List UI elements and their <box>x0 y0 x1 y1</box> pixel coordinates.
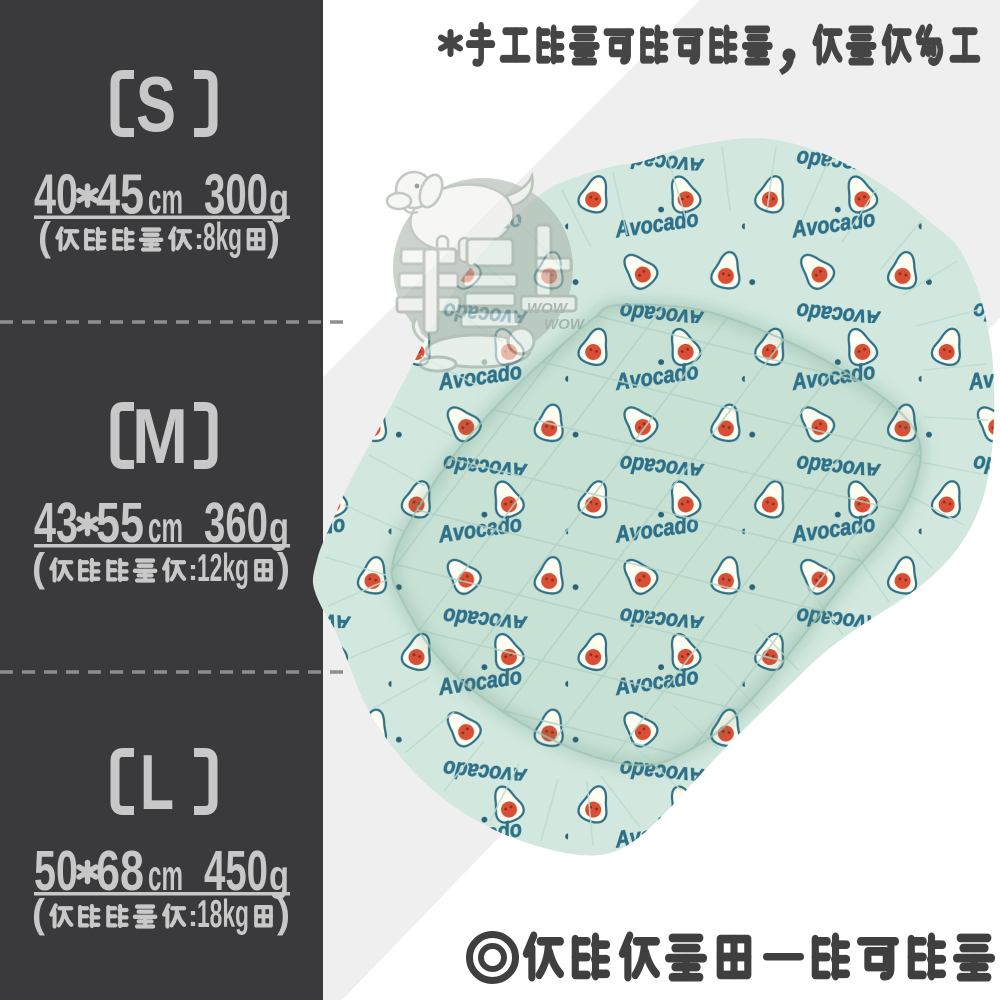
svg-text:): ) <box>267 215 280 259</box>
svg-text:): ) <box>277 546 290 590</box>
svg-text:8kg: 8kg <box>203 216 242 259</box>
svg-text:WOW: WOW <box>544 316 586 333</box>
svg-text:WOW: WOW <box>527 300 569 317</box>
svg-text:S: S <box>136 60 176 148</box>
svg-text:): ) <box>277 892 290 936</box>
svg-text:(: ( <box>32 892 46 936</box>
svg-text:12kg: 12kg <box>197 547 249 590</box>
svg-text:M: M <box>132 392 188 480</box>
svg-text:18kg: 18kg <box>197 893 249 936</box>
svg-text:L: L <box>140 738 174 826</box>
svg-text:(: ( <box>38 215 52 259</box>
svg-text:(: ( <box>32 546 46 590</box>
